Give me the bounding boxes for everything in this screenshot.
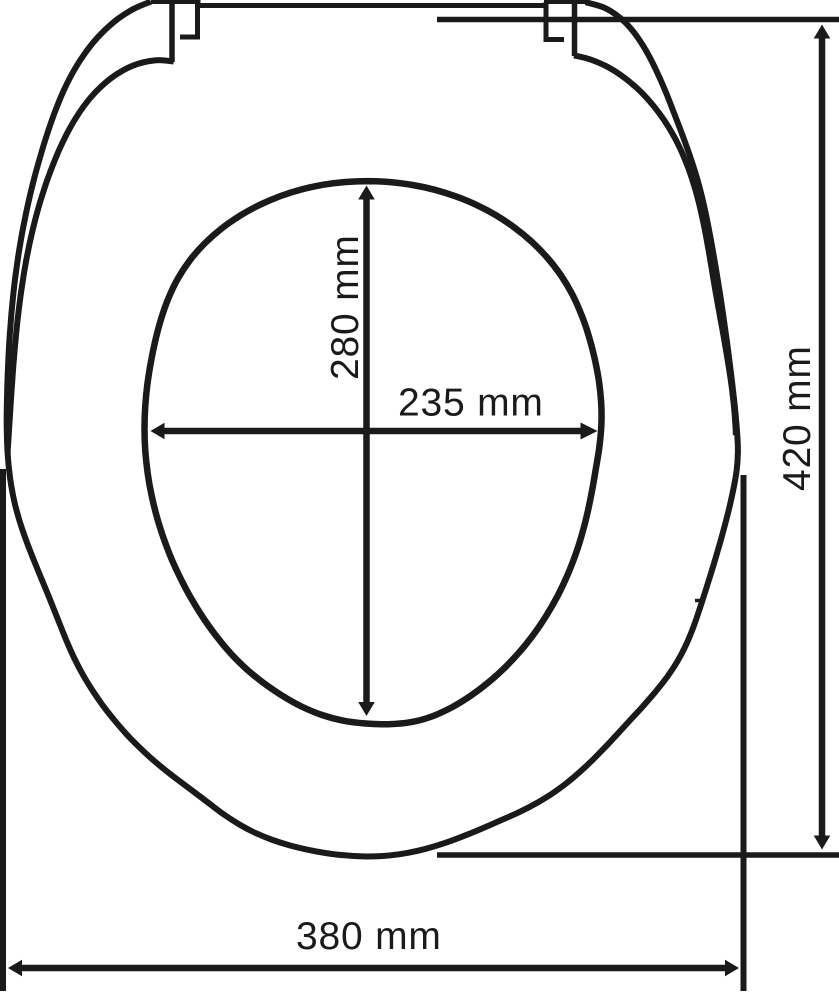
svg-text:235 mm: 235 mm — [398, 382, 544, 425]
svg-text:380 mm: 380 mm — [296, 915, 442, 958]
svg-text:280 mm: 280 mm — [324, 234, 367, 380]
svg-text:420 mm: 420 mm — [776, 345, 819, 491]
